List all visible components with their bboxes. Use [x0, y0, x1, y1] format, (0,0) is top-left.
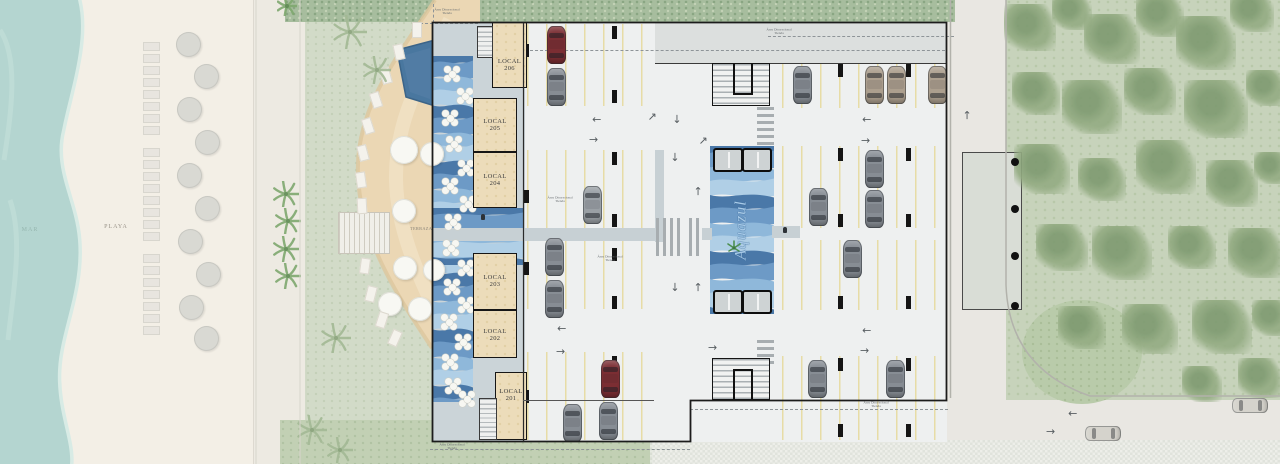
area-annotation: Área DiscrecionalTienda — [432, 443, 472, 450]
elevator-lobby-brand: Aquazul — [710, 146, 774, 314]
direction-arrow-icon: → — [861, 136, 870, 146]
tree-icon — [1012, 72, 1060, 115]
tree-icon — [1176, 16, 1236, 70]
beach-umbrella-icon — [195, 130, 220, 155]
stair-core-north — [712, 63, 770, 106]
annotation-line2: Tienda — [427, 12, 467, 16]
structural-column — [838, 296, 843, 309]
pool-umbrella-icon — [420, 142, 444, 166]
palm-tree-icon — [273, 181, 299, 207]
deck-lounger-icon — [364, 285, 378, 303]
local-201-unit — [495, 372, 527, 440]
deck-lounger-icon — [356, 144, 370, 162]
car-icon — [865, 150, 884, 188]
beach-lounger-icon — [143, 314, 160, 323]
patio-table-icon — [458, 260, 474, 276]
beach-umbrella-icon — [177, 163, 202, 188]
beach-lounger-icon — [143, 160, 160, 169]
deck-lounger-icon — [412, 22, 422, 38]
local-201-name: LOCAL — [499, 388, 522, 395]
sea-label: MAR — [8, 227, 52, 233]
beach-lounger-icon — [143, 66, 160, 75]
patio-table-icon — [445, 214, 461, 230]
pedestrian-walkway — [433, 228, 656, 241]
structural-column — [906, 296, 911, 309]
beach-umbrella-icon — [194, 326, 219, 351]
local-202-name: LOCAL — [483, 328, 506, 335]
structural-column — [612, 152, 617, 165]
local-204-label: LOCAL 204 — [473, 173, 517, 187]
car-icon — [865, 66, 884, 104]
palm-tree-icon — [277, 0, 297, 16]
beach-lounger-icon — [143, 208, 160, 217]
beach-lounger-icon — [143, 290, 160, 299]
structural-column — [612, 214, 617, 227]
palm-tree-icon — [275, 263, 301, 289]
car-icon — [599, 402, 618, 440]
local-206-number: 206 — [504, 65, 515, 72]
tree-icon — [1084, 14, 1140, 64]
direction-arrow-icon: → — [670, 282, 680, 291]
car-icon — [793, 66, 812, 104]
tree-icon — [1246, 70, 1280, 106]
person-icon — [481, 214, 485, 220]
structural-column — [906, 358, 911, 371]
dashed-line — [768, 36, 954, 37]
patio-table-icon — [444, 279, 460, 295]
plan-items-layer: →→→→→→→→→→→→→→→→→→→Área DiscrecionalTien… — [0, 0, 1280, 464]
tree-icon — [1230, 0, 1274, 32]
beach-umbrella-icon — [178, 229, 203, 254]
tree-icon — [1036, 224, 1088, 271]
deck-lounger-icon — [387, 329, 403, 348]
structural-column — [838, 358, 843, 371]
car-icon — [545, 280, 564, 318]
structural-column — [612, 296, 617, 309]
tree-icon — [1092, 226, 1152, 280]
car-icon — [843, 240, 862, 278]
car-icon — [547, 26, 566, 64]
structural-column — [612, 90, 617, 103]
direction-arrow-icon: → — [1046, 427, 1055, 437]
beach-lounger-icon — [143, 42, 160, 51]
dashed-line — [415, 23, 478, 24]
patio-table-icon — [458, 297, 474, 313]
area-annotation: Área DiscrecionalTienda — [540, 196, 580, 203]
structural-column — [838, 64, 843, 77]
tree-icon — [1168, 226, 1216, 269]
beach-lounger-icon — [143, 184, 160, 193]
tree-icon — [1228, 228, 1280, 278]
patio-table-icon — [441, 314, 457, 330]
area-annotation: Área DiscrecionalTienda — [759, 28, 799, 35]
local-203-name: LOCAL — [483, 274, 506, 281]
tree-icon — [1062, 80, 1122, 134]
direction-arrow-icon: → — [694, 186, 704, 195]
tree-icon — [1004, 4, 1056, 51]
deck-lounger-icon — [361, 117, 375, 135]
beach-umbrella-icon — [179, 295, 204, 320]
structural-column — [838, 424, 843, 437]
car-icon — [601, 360, 620, 398]
direction-arrow-icon: → — [1068, 408, 1077, 418]
tree-icon — [1252, 300, 1280, 336]
beach-lounger-icon — [143, 254, 160, 263]
patio-table-icon — [446, 136, 462, 152]
tree-icon — [1254, 152, 1280, 184]
parking-stall-lines — [782, 146, 945, 228]
tree-icon — [1192, 300, 1252, 354]
area-annotation: Área DiscrecionalTienda — [856, 401, 896, 408]
car-icon — [928, 66, 947, 104]
tree-icon — [1182, 366, 1222, 402]
palm-tree-icon — [321, 323, 351, 353]
annotation-line2: Tienda — [540, 200, 580, 204]
column-dot — [1011, 158, 1019, 166]
car-icon — [808, 360, 827, 398]
beach-lounger-icon — [143, 90, 160, 99]
direction-arrow-icon: → — [862, 114, 871, 124]
beach-lounger-icon — [143, 114, 160, 123]
stair-west-south — [479, 398, 497, 440]
structural-column — [906, 424, 911, 437]
deck-lounger-icon — [357, 198, 368, 215]
local-204-number: 204 — [490, 180, 501, 187]
car-icon — [583, 186, 602, 224]
beach-lounger-icon — [143, 78, 160, 87]
local-203-label: LOCAL 203 — [473, 274, 517, 288]
pool-umbrella-icon — [423, 259, 445, 281]
tree-icon — [1014, 144, 1070, 194]
palm-tree-icon — [363, 56, 391, 84]
car-icon — [547, 68, 566, 106]
patio-table-icon — [458, 160, 474, 176]
patio-table-icon — [442, 354, 458, 370]
tree-icon — [1184, 80, 1248, 138]
direction-arrow-icon: → — [589, 135, 598, 145]
deck-lounger-icon — [359, 257, 371, 274]
beach-lounger-icon — [143, 196, 160, 205]
car-icon — [1232, 398, 1268, 413]
patio-table-icon — [455, 334, 471, 350]
car-icon — [545, 238, 564, 276]
palm-tree-icon — [333, 15, 367, 49]
tree-icon — [1136, 140, 1196, 194]
patio-table-icon — [444, 66, 460, 82]
structural-column — [906, 64, 911, 77]
structural-column — [838, 148, 843, 161]
direction-arrow-icon: → — [557, 323, 566, 333]
deck-lounger-icon — [392, 43, 405, 61]
palm-tree-icon — [273, 236, 299, 262]
deck-lounger-icon — [355, 171, 367, 188]
local-202-label: LOCAL 202 — [473, 328, 517, 342]
car-icon — [886, 360, 905, 398]
direction-arrow-icon: → — [708, 343, 717, 353]
patio-table-icon — [443, 240, 459, 256]
beach-lounger-icon — [143, 266, 160, 275]
structural-column — [838, 214, 843, 227]
car-icon — [1085, 426, 1121, 441]
beach-lounger-icon — [143, 102, 160, 111]
local-201-label: LOCAL 201 — [495, 388, 527, 402]
direction-arrow-icon: → — [694, 282, 704, 291]
structural-column — [612, 26, 617, 39]
beach-lounger-icon — [143, 220, 160, 229]
pool-umbrella-icon — [390, 136, 418, 164]
annotation-line2: Tienda — [590, 259, 630, 263]
local-206-label: LOCAL 206 — [492, 58, 527, 72]
column-dot — [1011, 302, 1019, 310]
direction-arrow-icon: → — [862, 325, 871, 335]
local-203-number: 203 — [490, 281, 501, 288]
car-icon — [865, 190, 884, 228]
dashed-line — [690, 409, 948, 410]
palm-logo-icon — [726, 240, 742, 256]
annotation-line2: Tienda — [856, 405, 896, 409]
beach-lounger-icon — [143, 232, 160, 241]
beach-lounger-icon — [143, 54, 160, 63]
stair-west-north — [477, 26, 493, 58]
beach-umbrella-icon — [194, 64, 219, 89]
direction-arrow-icon: → — [860, 346, 869, 356]
beach-umbrella-icon — [177, 97, 202, 122]
local-202-number: 202 — [490, 335, 501, 342]
direction-arrow-icon: → — [963, 110, 973, 119]
local-205-name: LOCAL — [483, 118, 506, 125]
beach-umbrella-icon — [195, 196, 220, 221]
aquazul-site-plan: →→→→→→→→→→→→→→→→→→→Área DiscrecionalTien… — [0, 0, 1280, 464]
parking-stall-lines — [782, 356, 945, 440]
palm-tree-icon — [327, 437, 353, 463]
deck-lounger-icon — [369, 91, 383, 109]
direction-arrow-icon: → — [646, 110, 660, 124]
palm-tree-icon — [297, 415, 327, 445]
parking-stall-lines — [782, 240, 945, 310]
beach-umbrella-icon — [176, 32, 201, 57]
tree-icon — [1078, 158, 1126, 201]
beach-lounger-icon — [143, 126, 160, 135]
direction-arrow-icon: → — [670, 152, 680, 161]
beach-lounger-icon — [143, 148, 160, 157]
tree-icon — [1238, 358, 1280, 398]
annotation-line2: Tienda — [432, 447, 472, 451]
local-201-number: 201 — [506, 395, 517, 402]
patio-table-icon — [457, 88, 473, 104]
crosswalk-zebra — [656, 218, 683, 256]
local-206-name: LOCAL — [498, 58, 521, 65]
area-annotation: Área DiscrecionalTienda — [427, 8, 467, 15]
crosswalk-zebra — [689, 218, 702, 256]
tree-icon — [1058, 306, 1106, 349]
structural-column — [524, 262, 529, 275]
terrace-label: TERRAZA — [410, 226, 432, 231]
direction-arrow-icon: → — [592, 114, 601, 124]
stair-divider — [733, 64, 753, 95]
parking-stall-lines — [527, 352, 654, 440]
crosswalk-zebra — [757, 107, 774, 149]
tree-icon — [1124, 68, 1176, 115]
car-icon — [887, 66, 906, 104]
patio-table-icon — [459, 391, 475, 407]
stair-core-south — [712, 358, 770, 400]
patio-table-icon — [442, 110, 458, 126]
beach-lounger-icon — [143, 302, 160, 311]
local-205-number: 205 — [490, 125, 501, 132]
deck-lounger-icon — [375, 311, 389, 329]
direction-arrow-icon: → — [697, 134, 711, 148]
structural-column — [524, 190, 529, 203]
tree-icon — [1206, 160, 1258, 207]
pool-umbrella-icon — [393, 256, 417, 280]
annotation-line2: Tienda — [759, 32, 799, 36]
beach-label: PLAYA — [88, 224, 144, 230]
area-annotation: Área DiscrecionalTienda — [590, 255, 630, 262]
local-205-label: LOCAL 205 — [473, 118, 517, 132]
beach-lounger-icon — [143, 278, 160, 287]
structural-column — [906, 148, 911, 161]
direction-arrow-icon: → — [672, 114, 682, 123]
pool-umbrella-icon — [408, 297, 432, 321]
person-icon — [783, 227, 787, 233]
beach-umbrella-icon — [196, 262, 221, 287]
stair-divider — [733, 369, 753, 399]
structural-column — [906, 214, 911, 227]
direction-arrow-icon: → — [556, 347, 565, 357]
palm-tree-icon — [275, 208, 301, 234]
pool-umbrella-icon — [392, 199, 416, 223]
car-icon — [809, 188, 828, 226]
column-dot — [1011, 205, 1019, 213]
column-dot — [1011, 252, 1019, 260]
local-204-name: LOCAL — [483, 173, 506, 180]
tree-icon — [1122, 304, 1178, 354]
beach-lounger-icon — [143, 172, 160, 181]
dashed-line — [530, 50, 945, 51]
patio-table-icon — [442, 178, 458, 194]
local-206-unit — [492, 22, 527, 88]
beach-lounger-icon — [143, 326, 160, 335]
car-icon — [563, 404, 582, 442]
